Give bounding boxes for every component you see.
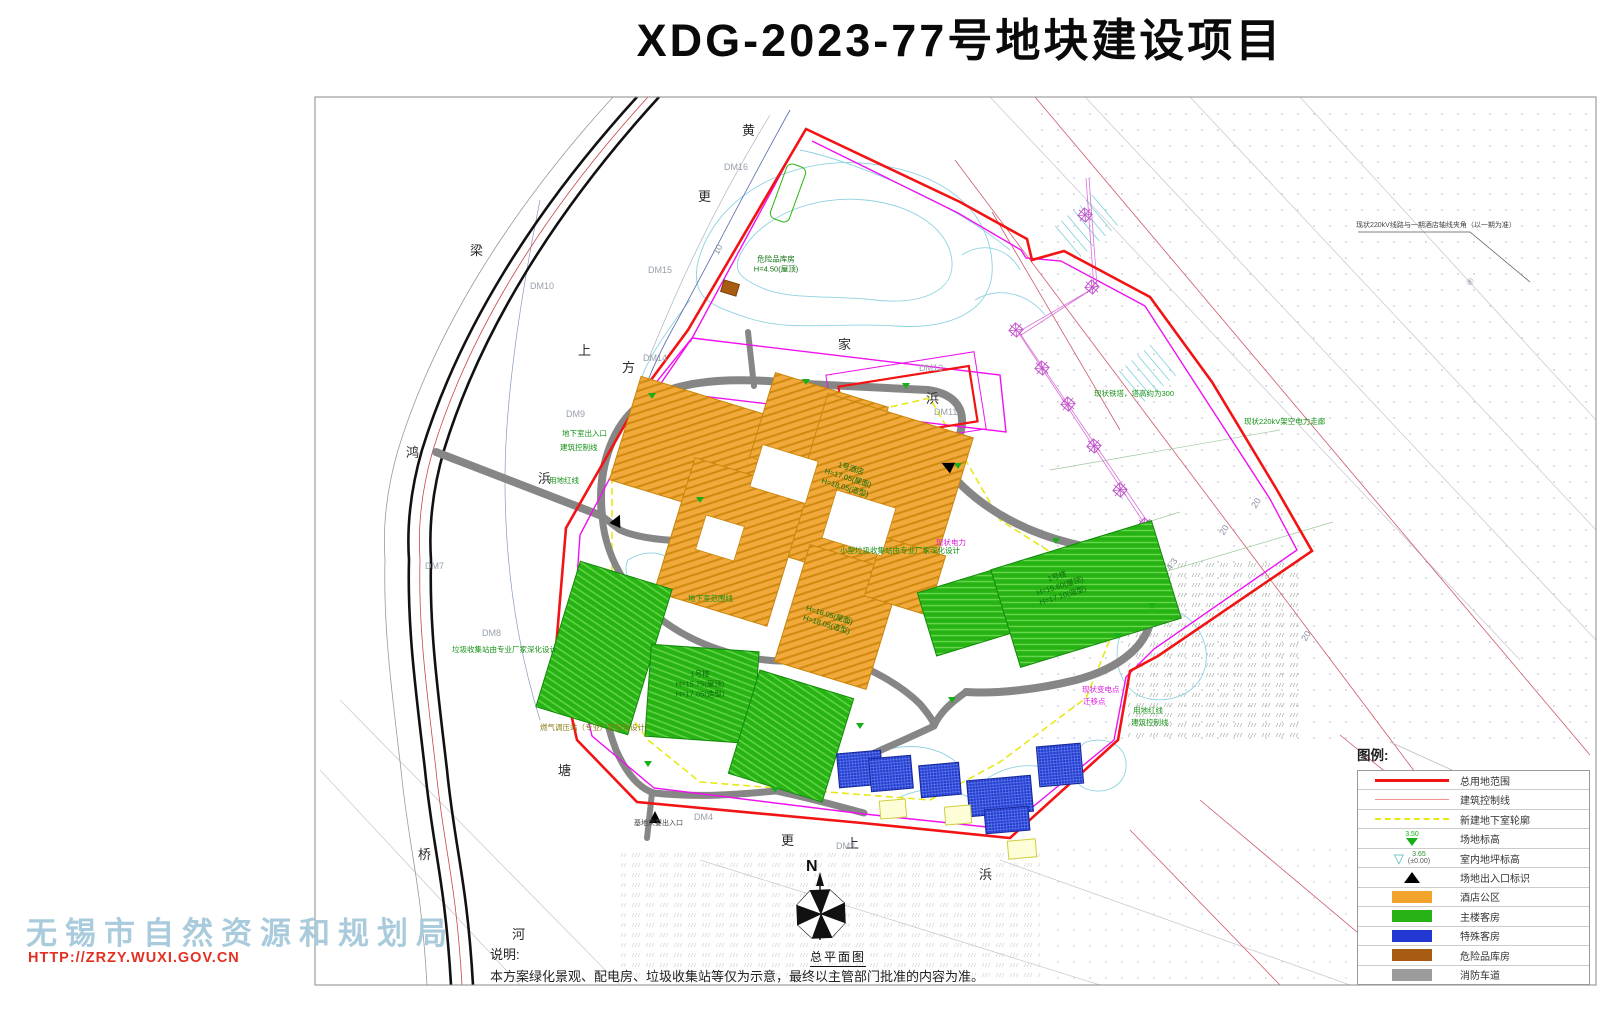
building-special: [984, 806, 1030, 834]
north-label: N: [806, 858, 818, 876]
map-label: 方: [622, 361, 635, 375]
survey-dot-grid: [1050, 840, 1350, 980]
map-label: DM9: [566, 410, 585, 420]
legend-label: 危险品库房: [1460, 948, 1510, 963]
map-label: 燃气调压站（专业厂家深化设计）: [540, 724, 653, 732]
building-pad: [879, 799, 906, 819]
legend-swatch-swatch-icon: [1364, 891, 1460, 903]
map-label: 更: [698, 190, 711, 204]
legend-swatch-line-thin-icon: [1364, 799, 1460, 800]
map-label: 上: [578, 344, 591, 358]
legend-label: 建筑控制线: [1460, 792, 1510, 807]
legend-row: 新建地下室轮廓: [1358, 809, 1589, 828]
legend: 总用地范围建筑控制线新建地下室轮廓3.50场地标高▽3.65(±0.00)室内地…: [1357, 770, 1590, 985]
legend-row: 特殊客房: [1358, 926, 1589, 945]
legend-label: 场地出入口标识: [1460, 870, 1530, 885]
map-label: 家: [838, 338, 851, 352]
map-label: DM16: [724, 163, 748, 173]
map-label: 小型垃圾收集站由专业厂家深化设计: [840, 547, 960, 555]
site-plan-sheet: XDG-2023-77号地块建设项目 黄更梁鸿浜上方家浜塘桥河更上浜DM16DM…: [0, 0, 1600, 1010]
notes-heading: 说明:: [490, 944, 984, 963]
map-label: ⑥: [1466, 278, 1474, 288]
map-label: DM7: [425, 562, 444, 572]
map-label: 建筑控制线: [1131, 719, 1169, 727]
legend-label: 特殊客房: [1460, 928, 1500, 943]
map-label: 浜: [926, 392, 939, 406]
legend-label: 主楼客房: [1460, 909, 1500, 924]
building-special: [919, 762, 962, 797]
legend-label: 总用地范围: [1460, 773, 1510, 788]
notes-body: 本方案绿化景观、配电房、垃圾收集站等仅为示意，最终以主管部门批准的内容为准。: [490, 966, 984, 985]
building-label: 1号楼H=15.75(屋顶)H=17.05(造型): [676, 669, 725, 698]
notes-block: 说明: 本方案绿化景观、配电房、垃圾收集站等仅为示意，最终以主管部门批准的内容为…: [490, 944, 984, 985]
building-strip: [769, 162, 808, 223]
legend-label: 场地标高: [1460, 831, 1500, 846]
legend-row: ▽3.65(±0.00)室内地坪标高: [1358, 848, 1589, 867]
legend-row: 建筑控制线: [1358, 789, 1589, 808]
map-label: DM4: [694, 813, 713, 823]
map-label: DM11: [934, 408, 957, 418]
map-label: 迁移点: [1083, 698, 1106, 706]
legend-label: 酒店公区: [1460, 889, 1500, 904]
map-label: 现状电力: [936, 539, 966, 547]
building-special: [1036, 743, 1083, 787]
legend-title: 图例:: [1357, 744, 1389, 764]
map-label: DM14: [643, 354, 667, 364]
legend-row: 3.50场地标高: [1358, 828, 1589, 847]
map-label: 河: [512, 928, 525, 942]
legend-swatch-swatch-icon: [1364, 930, 1460, 942]
map-label: 浜: [979, 868, 992, 882]
map-label: DM10: [530, 282, 554, 292]
map-label: 地下室范围线: [688, 595, 733, 603]
map-label: 塘: [558, 764, 571, 778]
map-label: DM13: [919, 364, 943, 374]
map-label: 桥: [418, 848, 431, 862]
building-label: 危险品库房H=4.50(屋顶): [754, 254, 798, 274]
map-label: 垃圾收集站由专业厂家深化设计: [452, 646, 557, 654]
map-label: 基地次要出入口: [634, 820, 683, 828]
pylon-icon: [1005, 319, 1028, 342]
legend-swatch-swatch-icon: [1364, 949, 1460, 961]
legend-swatch-tri-green-icon: 3.50: [1364, 831, 1460, 846]
map-label: 黄: [742, 124, 755, 138]
legend-swatch-swatch-icon: [1364, 969, 1460, 981]
legend-row: 酒店公区: [1358, 887, 1589, 906]
legend-row: 消防车道: [1358, 965, 1589, 984]
legend-label: 消防车道: [1460, 967, 1500, 982]
watermark-url: HTTP://ZRZY.WUXI.GOV.CN: [28, 950, 240, 966]
legend-swatch-tri-black-icon: [1364, 872, 1460, 883]
elevation-mark-icon: [856, 723, 864, 729]
map-label: 建筑控制线: [560, 444, 598, 452]
map-label: DM15: [648, 266, 672, 276]
watermark-org: 无锡市自然资源和规划局: [26, 908, 455, 953]
map-label: 现状铁塔，塔高约为300: [1094, 390, 1174, 398]
map-label: DM3: [836, 842, 855, 852]
legend-swatch-line-dash-icon: [1364, 818, 1460, 820]
building-hazard: [721, 280, 740, 296]
legend-row: 主楼客房: [1358, 906, 1589, 925]
legend-row: 危险品库房: [1358, 945, 1589, 964]
map-label: 鸿: [406, 446, 419, 460]
legend-row: 总用地范围: [1358, 771, 1589, 789]
building-pad: [944, 805, 971, 825]
page-title: XDG-2023-77号地块建设项目: [320, 4, 1600, 69]
legend-swatch-swatch-icon: [1364, 910, 1460, 922]
building-pad: [1007, 839, 1036, 859]
legend-label: 室内地坪标高: [1460, 851, 1520, 866]
map-label: 现状220kV线路与一期酒店轴线夹角（以一期为准）: [1356, 222, 1516, 230]
legend-swatch-tri-open-icon: ▽3.65(±0.00): [1364, 851, 1460, 865]
legend-label: 新建地下室轮廓: [1460, 812, 1530, 827]
map-label: 用地红线: [1133, 707, 1163, 715]
map-label: 现状变电点: [1082, 686, 1120, 694]
map-label: 梁: [470, 244, 483, 258]
map-label: 地下室出入口: [562, 430, 607, 438]
map-label: DM8: [482, 629, 501, 639]
map-label: 现状220kV架空电力走廊: [1244, 418, 1325, 426]
legend-row: 场地出入口标识: [1358, 867, 1589, 886]
legend-swatch-line-thick-icon: [1364, 779, 1460, 782]
map-label: 用地红线: [549, 477, 579, 485]
elevation-mark-icon: [644, 761, 652, 767]
building-special: [869, 755, 914, 792]
map-label: 更: [781, 834, 794, 848]
